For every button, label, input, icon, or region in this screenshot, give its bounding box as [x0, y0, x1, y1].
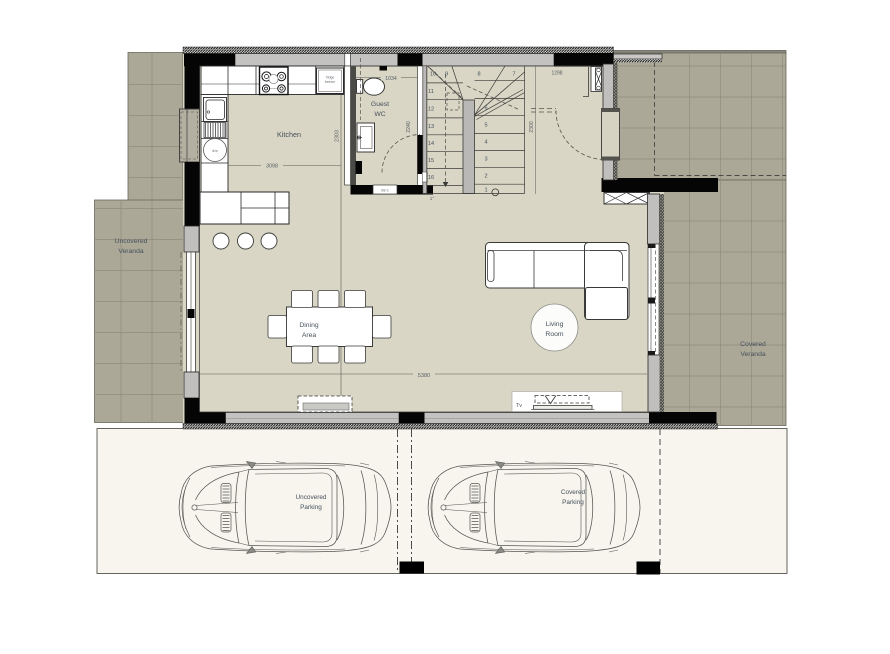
svg-text:16: 16 — [428, 175, 434, 181]
svg-text:4: 4 — [484, 140, 487, 146]
svg-text:d/w: d/w — [212, 149, 218, 153]
svg-text:1034: 1034 — [385, 76, 397, 82]
svg-text:8: 8 — [477, 72, 480, 78]
svg-text:6: 6 — [484, 106, 487, 112]
svg-text:Covered: Covered — [561, 489, 586, 496]
svg-text:12: 12 — [428, 107, 434, 113]
svg-text:Living: Living — [546, 321, 564, 328]
svg-text:Dining: Dining — [299, 322, 318, 329]
svg-text:5380: 5380 — [418, 373, 430, 379]
svg-text:5: 5 — [484, 123, 487, 129]
svg-text:Uncovered: Uncovered — [296, 494, 327, 501]
svg-text:Kitchen: Kitchen — [277, 130, 301, 139]
svg-text:2303: 2303 — [335, 130, 341, 142]
svg-text:2300: 2300 — [529, 121, 535, 133]
svg-text:3: 3 — [484, 157, 487, 163]
svg-text:fridge: fridge — [326, 76, 335, 80]
svg-text:Veranda: Veranda — [118, 248, 144, 255]
svg-text:13: 13 — [428, 124, 434, 130]
svg-text:Parking: Parking — [562, 499, 584, 506]
svg-text:2240: 2240 — [406, 121, 412, 133]
svg-text:08-1: 08-1 — [381, 188, 390, 193]
svg-text:Uncovered: Uncovered — [115, 238, 148, 245]
svg-text:Room: Room — [545, 331, 563, 338]
svg-text:freezer: freezer — [325, 80, 336, 84]
svg-text:14: 14 — [428, 141, 434, 147]
svg-text:1°: 1° — [430, 196, 435, 201]
svg-text:15: 15 — [428, 158, 434, 164]
svg-text:2: 2 — [484, 174, 487, 180]
svg-text:1298: 1298 — [551, 71, 562, 77]
svg-text:3098: 3098 — [266, 164, 278, 170]
svg-text:11: 11 — [428, 89, 434, 95]
svg-text:Covered: Covered — [740, 341, 766, 348]
svg-text:7: 7 — [512, 72, 515, 78]
svg-text:Parking: Parking — [300, 504, 322, 511]
svg-text:9: 9 — [445, 72, 448, 78]
svg-text:1: 1 — [484, 188, 487, 194]
svg-text:Guest: Guest — [371, 101, 389, 108]
svg-text:Veranda: Veranda — [740, 351, 766, 358]
svg-text:10: 10 — [430, 72, 436, 78]
svg-text:Tv: Tv — [516, 403, 522, 409]
svg-text:WC: WC — [374, 111, 385, 118]
svg-text:Area: Area — [302, 332, 317, 339]
